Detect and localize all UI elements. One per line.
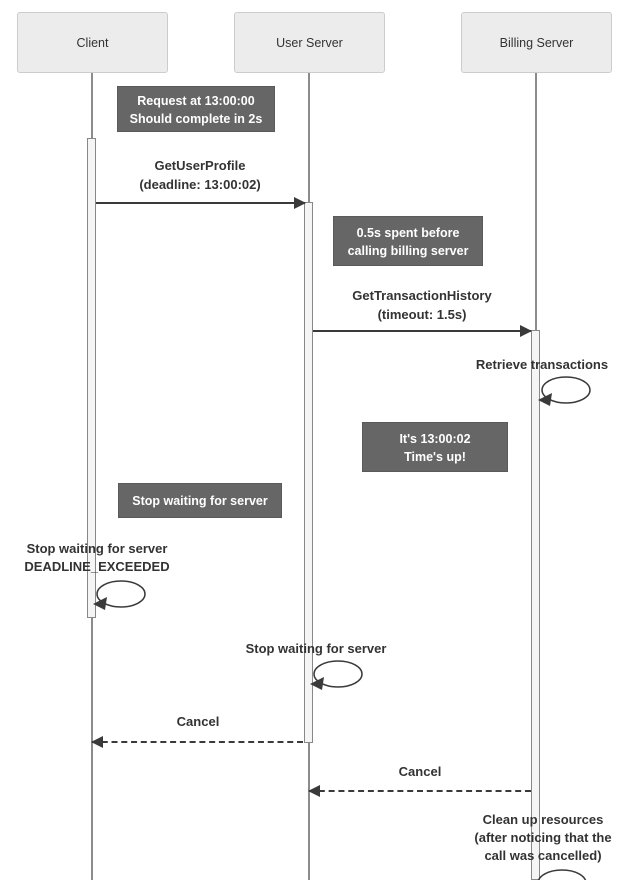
actor-client-label: Client [77, 36, 109, 50]
selfloop-label-deadline-exceeded: Stop waiting for server DEADLINE_EXCEEDE… [0, 540, 197, 576]
selfloop-arrow-stop-waiting-user [309, 660, 369, 694]
actor-user-server: User Server [234, 12, 385, 73]
message-arrow-gettransactionhistory [313, 330, 531, 332]
actor-user-server-label: User Server [276, 36, 343, 50]
actor-client: Client [17, 12, 168, 73]
selfloop-arrow-clean-up [533, 869, 593, 880]
note-stop-waiting: Stop waiting for server [118, 483, 282, 518]
message-arrow-getuserprofile [96, 202, 305, 204]
arrowhead-left-icon [91, 736, 103, 748]
selfloop-arrow-retrieve-transactions [537, 376, 597, 410]
selfloop-label-clean-up: Clean up resources (after noticing that … [443, 811, 635, 865]
arrowhead-right-icon [520, 325, 532, 337]
selfloop-label-retrieve-transactions: Retrieve transactions [442, 355, 635, 374]
selfloop-label-stop-waiting-user: Stop waiting for server [216, 639, 416, 658]
activation-bar-billing-server [531, 330, 540, 880]
message-arrow-cancel-2 [309, 790, 531, 792]
message-label-cancel-1: Cancel [148, 713, 248, 731]
arrowhead-left-icon [308, 785, 320, 797]
actor-billing-server-label: Billing Server [500, 36, 574, 50]
message-label-cancel-2: Cancel [370, 763, 470, 781]
message-label-gettransactionhistory: GetTransactionHistory (timeout: 1.5s) [322, 286, 522, 324]
selfloop-arrow-deadline-exceeded [92, 580, 152, 614]
note-request-time: Request at 13:00:00 Should complete in 2… [117, 86, 275, 132]
message-label-getuserprofile: GetUserProfile (deadline: 13:00:02) [100, 156, 300, 194]
note-time-spent: 0.5s spent before calling billing server [333, 216, 483, 266]
sequence-diagram: Client User Server Billing Server Reques… [0, 0, 635, 880]
message-arrow-cancel-1 [92, 741, 303, 743]
actor-billing-server: Billing Server [461, 12, 612, 73]
arrowhead-right-icon [294, 197, 306, 209]
note-times-up: It's 13:00:02 Time's up! [362, 422, 508, 472]
